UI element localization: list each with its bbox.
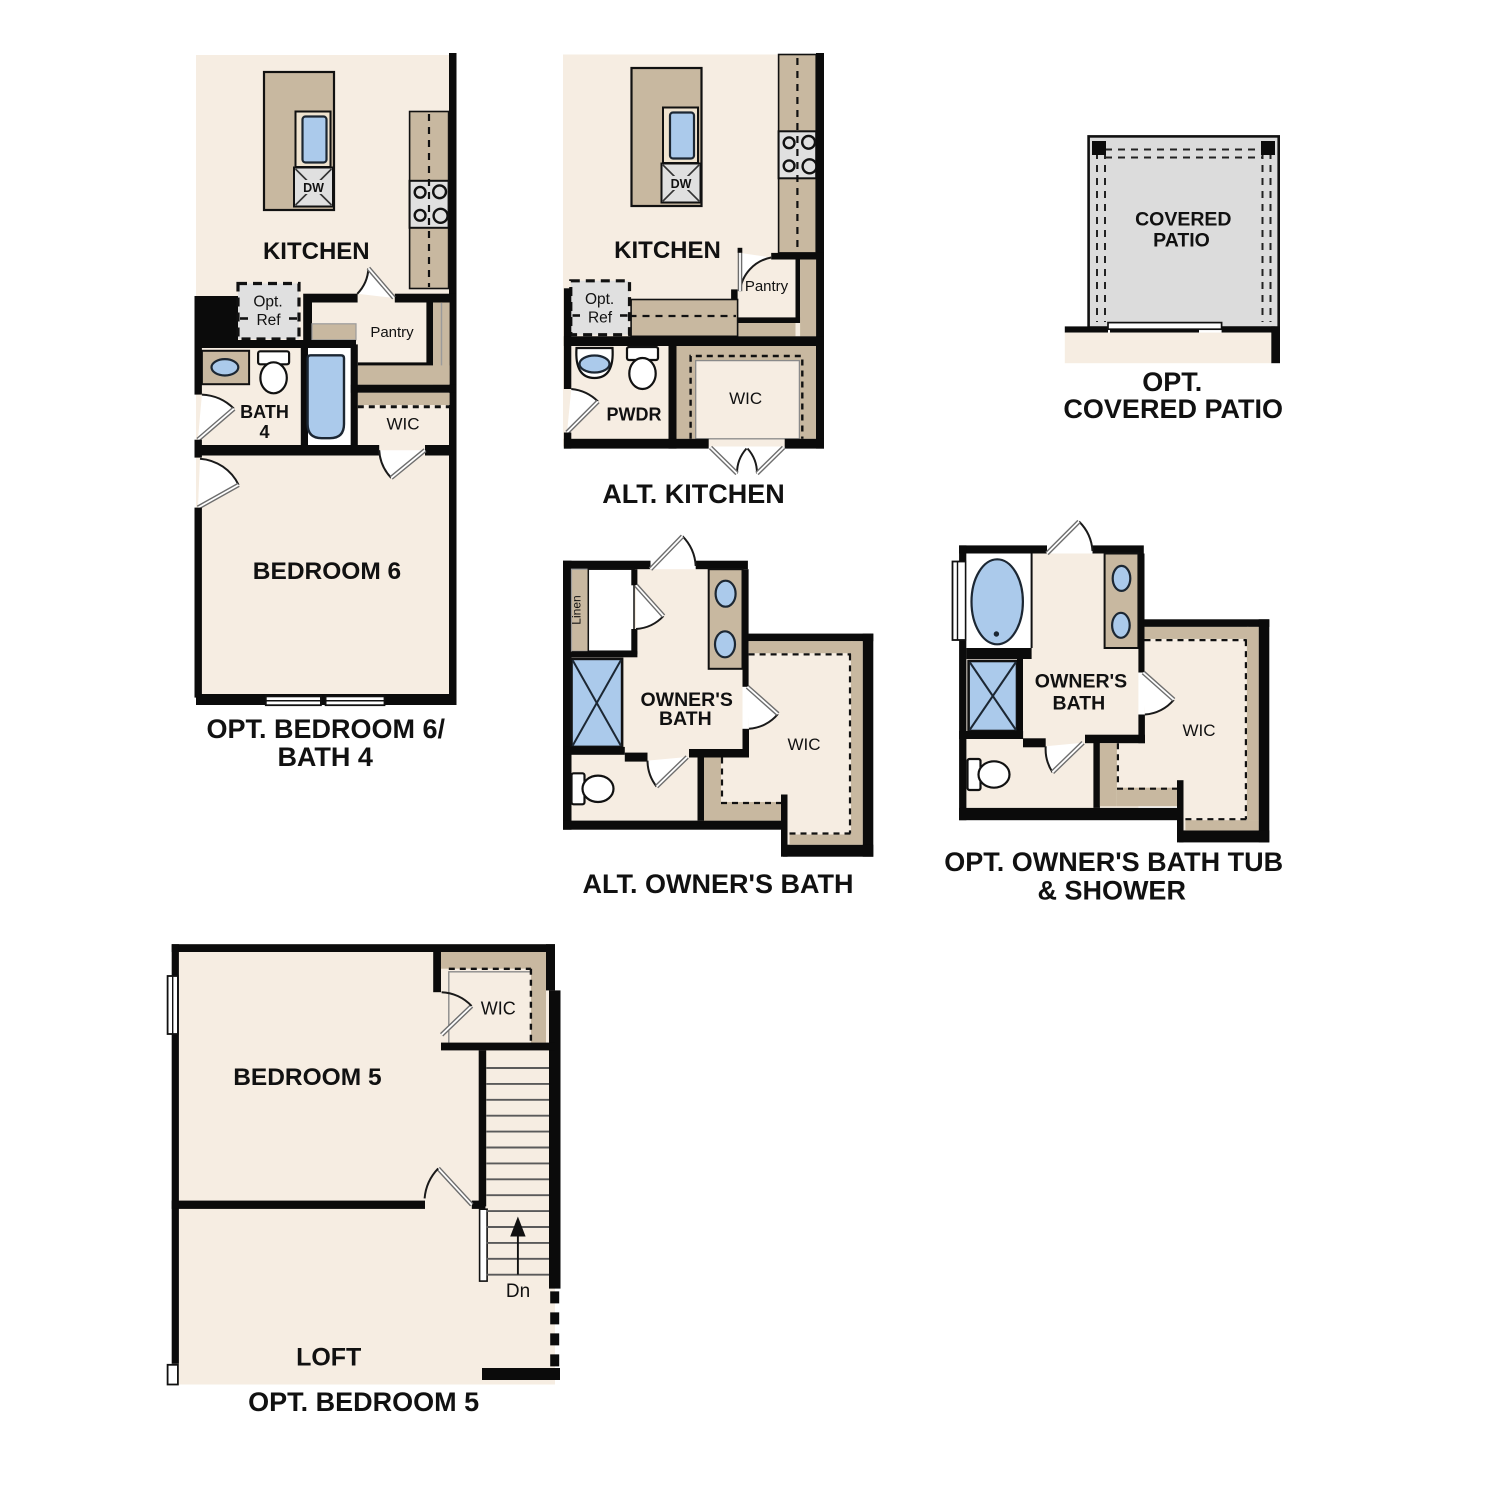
svg-text:PWDR: PWDR: [607, 405, 662, 425]
svg-text:KITCHEN: KITCHEN: [614, 237, 721, 264]
svg-text:OPT. OWNER'S BATH TUB: OPT. OWNER'S BATH TUB: [944, 847, 1283, 877]
svg-text:Opt.: Opt.: [253, 294, 282, 311]
svg-text:BATH: BATH: [240, 402, 289, 422]
svg-text:DW: DW: [671, 177, 692, 191]
svg-text:WIC: WIC: [1182, 721, 1215, 740]
svg-text:DW: DW: [303, 181, 324, 195]
svg-text:OPT. BEDROOM 5: OPT. BEDROOM 5: [248, 1387, 479, 1417]
svg-text:OPT. BEDROOM 6/: OPT. BEDROOM 6/: [207, 714, 446, 744]
svg-text:WIC: WIC: [729, 389, 762, 408]
svg-text:COVERED: COVERED: [1135, 209, 1231, 231]
svg-text:Opt.: Opt.: [585, 291, 614, 308]
svg-text:Ref: Ref: [588, 310, 613, 327]
svg-text:BEDROOM 5: BEDROOM 5: [233, 1064, 381, 1091]
svg-text:WIC: WIC: [481, 998, 516, 1018]
svg-text:ALT. KITCHEN: ALT. KITCHEN: [602, 479, 785, 509]
svg-text:COVERED PATIO: COVERED PATIO: [1063, 394, 1283, 424]
svg-text:WIC: WIC: [386, 415, 419, 434]
svg-text:OWNER'S: OWNER'S: [1035, 671, 1127, 693]
svg-text:& SHOWER: & SHOWER: [1037, 875, 1186, 905]
svg-text:Linen: Linen: [570, 595, 584, 624]
svg-text:OPT.: OPT.: [1142, 367, 1202, 397]
svg-text:Ref: Ref: [256, 312, 281, 329]
svg-text:Pantry: Pantry: [370, 324, 414, 341]
svg-text:Pantry: Pantry: [745, 278, 789, 295]
svg-text:KITCHEN: KITCHEN: [263, 238, 370, 265]
svg-text:BATH: BATH: [1053, 693, 1106, 715]
svg-text:BEDROOM 6: BEDROOM 6: [253, 558, 401, 585]
svg-text:Dn: Dn: [506, 1281, 530, 1302]
svg-text:BATH 4: BATH 4: [277, 742, 373, 772]
svg-text:LOFT: LOFT: [296, 1344, 361, 1372]
svg-text:WIC: WIC: [787, 735, 820, 754]
svg-text:4: 4: [259, 422, 269, 442]
svg-text:ALT. OWNER'S BATH: ALT. OWNER'S BATH: [583, 869, 854, 899]
svg-text:PATIO: PATIO: [1153, 230, 1210, 252]
svg-text:BATH: BATH: [659, 708, 712, 730]
